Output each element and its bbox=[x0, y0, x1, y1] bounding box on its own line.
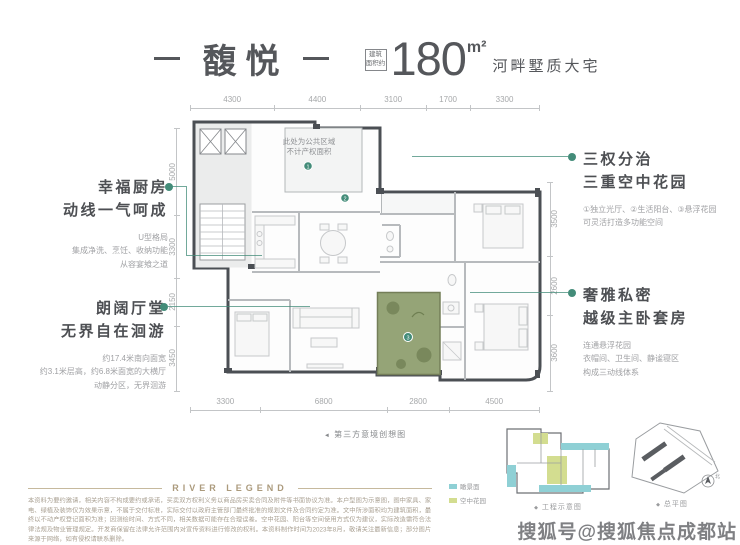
poster: 馥悦 建筑 面积约 180 m² 河畔墅质大宅 4300440031001700… bbox=[0, 0, 740, 545]
dimension-segment: 4500 bbox=[449, 398, 539, 413]
annotation-dot-master bbox=[568, 289, 576, 297]
dimension-segment: 3450 bbox=[165, 326, 180, 391]
connector-kitchen-h1 bbox=[172, 186, 186, 187]
dimension-segment: 2800 bbox=[387, 398, 450, 413]
legend-item: 空中花园 bbox=[449, 495, 486, 505]
dimension-segment: 6800 bbox=[260, 398, 386, 413]
bedroom-3-bed bbox=[235, 312, 269, 356]
engineering-diagram bbox=[503, 423, 613, 499]
dimension-end-tick bbox=[174, 391, 180, 392]
page-title: 馥悦 bbox=[194, 34, 289, 83]
annotation-living: 朗阔厅堂 无界自在洄游 约17.4米南向面宽 约3.1米层高，约6.8米面宽的大… bbox=[24, 297, 166, 393]
annotation-title: 无界自在洄游 bbox=[24, 320, 166, 343]
caption-text: 第三方意境创想图 bbox=[334, 430, 406, 439]
annotation-detail: 集成净洗、烹饪、收纳功能 bbox=[28, 245, 168, 258]
site-plan: 北 bbox=[622, 419, 722, 497]
caption-marker-icon: ◄ bbox=[324, 433, 331, 439]
annotation-dot-kitchen bbox=[165, 183, 173, 191]
dimension-row-top: 43004400310017003300 bbox=[190, 96, 540, 111]
annotation-gardens: 三权分治 三重空中花园 ①独立光厅、②生活阳台、③悬浮花园 可灵活打造多功能空间 bbox=[583, 148, 735, 230]
annotation-title: 越级主卧套房 bbox=[583, 307, 735, 330]
legend-label: 瞰景面 bbox=[460, 481, 480, 491]
dimension-segment: 3100 bbox=[360, 96, 426, 111]
title-dash-right bbox=[303, 57, 329, 60]
annotation-title: 三权分治 bbox=[583, 148, 735, 171]
annotation-title: 朗阔厅堂 bbox=[24, 297, 166, 320]
color-legend: 瞰景面空中花园 bbox=[449, 481, 486, 505]
brand-divider: RIVER LEGEND bbox=[28, 483, 432, 493]
header: 馥悦 建筑 面积约 180 m² 河畔墅质大宅 bbox=[0, 34, 740, 83]
annotation-title: 三重空中花园 bbox=[583, 171, 735, 194]
svg-text:2: 2 bbox=[343, 196, 346, 202]
dimension-segment: 4300 bbox=[190, 96, 274, 111]
connector-kitchen-h2 bbox=[186, 255, 262, 256]
annotation-detail: 连通悬浮花园 bbox=[583, 340, 735, 353]
dimension-segment: 3300 bbox=[470, 96, 539, 111]
siteplan-caption: ◆ 总平图 bbox=[622, 499, 722, 509]
caption-text: 总平图 bbox=[664, 501, 688, 508]
area-subtitle: 河畔墅质大宅 bbox=[492, 55, 600, 76]
plan-note-line1: 此处为公共区域 bbox=[283, 136, 336, 146]
area-label-box: 建筑 面积约 bbox=[365, 49, 387, 71]
dimension-end-tick bbox=[539, 105, 540, 111]
svg-text:北: 北 bbox=[715, 473, 720, 480]
area-value: 180 bbox=[391, 40, 466, 79]
plan-note-line2: 不计产权面积 bbox=[287, 146, 332, 156]
dimension-segment: 4400 bbox=[274, 96, 360, 111]
annotation-detail: 动静分区，无界洄游 bbox=[24, 380, 166, 393]
title-dash-left bbox=[154, 57, 180, 60]
annotation-detail: 可灵活打造多功能空间 bbox=[583, 217, 735, 230]
annotation-title: 动线一气呵成 bbox=[28, 199, 168, 222]
divider-line-left bbox=[28, 488, 162, 489]
annotation-detail: 约17.4米南向面宽 bbox=[24, 353, 166, 366]
area-label-line1: 建筑 bbox=[369, 51, 382, 59]
dimension-row-bottom: 3300680028004500 bbox=[190, 398, 540, 413]
divider-line-right bbox=[298, 488, 432, 489]
dimension-segment: 3600 bbox=[547, 315, 562, 391]
disclaimer-area: 本资料为要约邀请，相关内容不构成要约或承诺，买卖双方权利义务以商品房买卖合同及附… bbox=[28, 496, 432, 542]
annotation-detail: 构成三动线体系 bbox=[583, 367, 735, 380]
annotation-dot-living bbox=[160, 303, 168, 311]
dimension-segment: 3300 bbox=[190, 398, 260, 413]
area-label-line2: 面积约 bbox=[366, 60, 386, 68]
legend-swatch bbox=[449, 484, 457, 489]
dimension-end-tick bbox=[547, 391, 553, 392]
svg-text:3: 3 bbox=[406, 336, 409, 342]
svg-text:1: 1 bbox=[306, 164, 309, 170]
annotation-detail: ①独立光厅、②生活阳台、③悬浮花园 bbox=[583, 204, 735, 217]
legend-item: 瞰景面 bbox=[449, 481, 486, 491]
caption-marker-icon: ◆ bbox=[656, 502, 661, 508]
annotation-detail: 从容宴飨之道 bbox=[28, 259, 168, 272]
annotation-detail: 衣帽间、卫生间、静谧寝区 bbox=[583, 353, 735, 366]
area-unit: m² bbox=[467, 39, 487, 57]
connector-kitchen-v bbox=[186, 186, 187, 255]
annotation-dot-gardens bbox=[568, 153, 576, 161]
legend-label: 空中花园 bbox=[460, 495, 486, 505]
annotation-kitchen: 幸福厨房 动线一气呵成 U型格局 集成净洗、烹饪、收纳功能 从容宴飨之道 bbox=[28, 176, 168, 272]
marker-1: 1 bbox=[304, 162, 312, 171]
brand-name: RIVER LEGEND bbox=[172, 483, 288, 493]
annotation-master: 奢雅私密 越级主卧套房 连通悬浮花园 衣帽间、卫生间、静谧寝区 构成三动线体系 bbox=[583, 284, 735, 380]
annotation-title: 奢雅私密 bbox=[583, 284, 735, 307]
watermark: 搜狐号@搜狐焦点成都站 bbox=[517, 517, 737, 544]
dimension-end-tick bbox=[539, 407, 540, 413]
dimension-segment: 1700 bbox=[426, 96, 470, 111]
balcony-band bbox=[382, 194, 456, 214]
dimension-col-right: 350026003600 bbox=[547, 182, 562, 392]
connector-master bbox=[470, 292, 568, 293]
plan-source-caption: ◄ 第三方意境创想图 bbox=[190, 429, 540, 440]
caption-text: 工程示意图 bbox=[542, 504, 582, 511]
dimension-segment: 3500 bbox=[547, 182, 562, 256]
connector-gardens bbox=[412, 156, 568, 157]
connector-living bbox=[168, 306, 310, 307]
annotation-title: 幸福厨房 bbox=[28, 176, 168, 199]
legend-swatch bbox=[449, 498, 457, 503]
marker-3: 3 bbox=[404, 333, 413, 342]
annotation-detail: 约3.1米层高，约6.8米面宽的大横厅 bbox=[24, 366, 166, 379]
marker-2: 2 bbox=[341, 194, 349, 203]
dimension-segment: 2600 bbox=[547, 256, 562, 316]
annotation-detail: U型格局 bbox=[28, 232, 168, 245]
area-spec: 建筑 面积约 180 m² 河畔墅质大宅 bbox=[365, 39, 601, 79]
caption-marker-icon: ◆ bbox=[534, 505, 539, 511]
disclaimer-text: 本资料为要约邀请，相关内容不构成要约或承诺，买卖双方权利义务以商品房买卖合同及附… bbox=[28, 496, 431, 542]
engineering-caption: ◆ 工程示意图 bbox=[503, 502, 613, 512]
dimension-segment: 2150 bbox=[165, 278, 180, 325]
